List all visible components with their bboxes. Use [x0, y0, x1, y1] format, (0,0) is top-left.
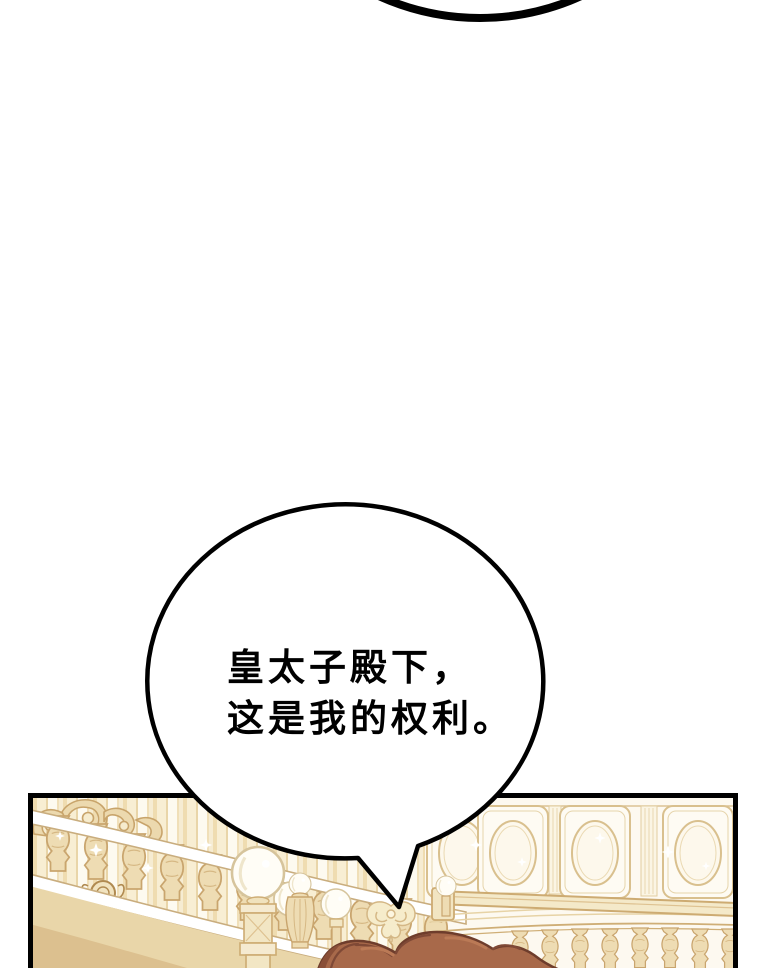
bubble-text-line-1: 皇太子殿下，	[227, 647, 473, 688]
lamp-globe-small-icon	[436, 876, 456, 896]
bubble-text-line-2: 这是我的权利。	[227, 698, 514, 739]
lamp-globe-large-icon	[232, 847, 284, 899]
lamp-globe-small-icon	[289, 873, 311, 895]
wall-frame	[478, 806, 548, 898]
lamp-large	[232, 847, 284, 968]
wall-frame	[560, 806, 630, 898]
vase-lamp	[286, 873, 314, 948]
comic-page: 皇太子殿下， 这是我的权利。	[0, 0, 760, 968]
lamp-globe-small-icon	[321, 889, 351, 919]
comic-page-svg: 皇太子殿下， 这是我的权利。	[0, 0, 760, 968]
